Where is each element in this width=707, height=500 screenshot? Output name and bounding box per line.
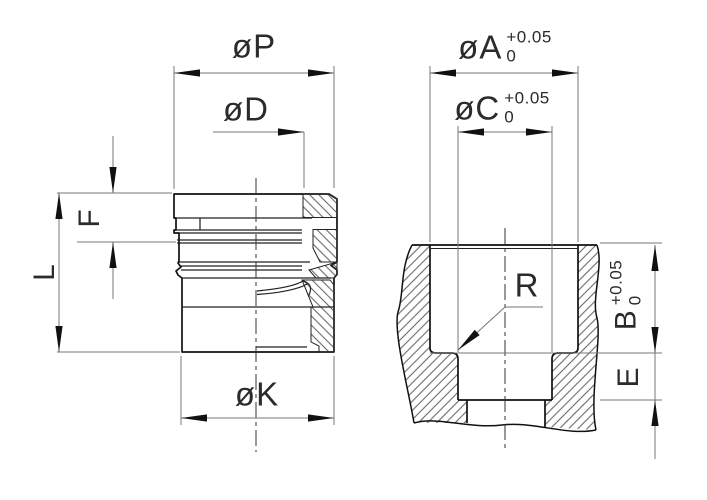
housing-section-hatch: [397, 245, 599, 430]
dim-c-label: øC +0.05 0: [454, 89, 550, 126]
dim-e-label: E: [614, 366, 644, 387]
drawing-canvas: øP øD øK F L R øA +0.05 0 øC +0.05 0 B +…: [0, 0, 707, 500]
dim-r-leader: [458, 307, 543, 350]
dim-d-label: øD: [223, 93, 269, 126]
dim-a-upper-tolerance: +0.05: [506, 28, 552, 47]
dim-p-lines: [174, 66, 334, 189]
dim-f-label: F: [75, 208, 105, 227]
dim-b-upper-tolerance: +0.05: [607, 260, 626, 306]
dim-p-label: øP: [232, 30, 276, 63]
dim-k-label: øK: [235, 378, 279, 411]
dim-c-lower-tolerance: 0: [504, 108, 550, 127]
dim-d-lines: [213, 132, 304, 188]
dim-b-label: B +0.05 0: [607, 260, 644, 331]
dim-c-upper-tolerance: +0.05: [504, 89, 550, 108]
technical-drawing: [0, 0, 707, 500]
dim-l-label: L: [30, 263, 60, 281]
dim-a-label: øA +0.05 0: [458, 28, 552, 65]
dim-b-lower-tolerance: 0: [626, 260, 645, 306]
dim-a-lower-tolerance: 0: [506, 47, 552, 66]
right-view: [397, 228, 599, 448]
dim-r-label: R: [515, 269, 540, 302]
